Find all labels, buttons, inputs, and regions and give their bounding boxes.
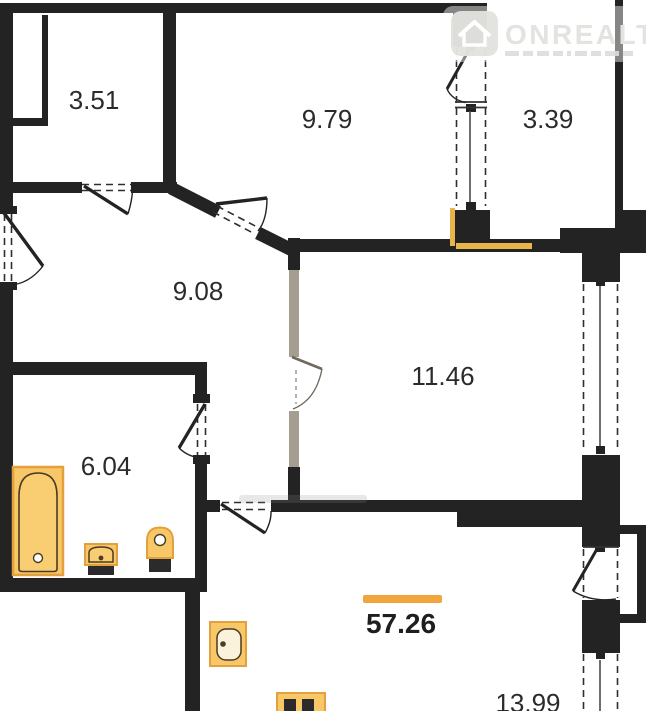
bedroom-door	[216, 198, 267, 231]
logo-subtext-blocks	[505, 51, 633, 56]
area-label-loggia: 3.39	[523, 104, 574, 134]
entrance-door	[4, 213, 43, 285]
wall-storage-bedroom	[163, 13, 176, 185]
brand-name: ONREALT	[505, 19, 646, 50]
entrance-jamb-top	[0, 206, 17, 214]
accent-left	[450, 208, 455, 246]
wall-loggia-bottom	[560, 228, 646, 253]
floor-plan-drawing: 3.51 9.79 3.39 9.08 11.46 6.04 57.26 13.…	[0, 0, 646, 711]
diagonal-door-opening	[213, 212, 255, 234]
bathtub-icon	[13, 467, 63, 575]
room-labels: 3.51 9.79 3.39 9.08 11.46 6.04 57.26 13.…	[69, 85, 574, 711]
wall-bedroom-room	[293, 239, 582, 252]
faint-watermark-smudge	[239, 495, 367, 503]
kitchen-door	[221, 504, 271, 533]
area-label-bathroom: 6.04	[81, 451, 132, 481]
hinge-square	[596, 278, 605, 286]
total-area-value: 57.26	[366, 608, 436, 639]
bathroom-door	[179, 404, 205, 458]
wall-left-lower	[0, 283, 13, 592]
wall-loggia-corner	[615, 210, 646, 230]
stove-icon	[277, 693, 325, 711]
wall-kitchen-left	[185, 592, 200, 711]
wall-kitchen-top-thick	[457, 500, 582, 527]
toilet-icon	[147, 528, 173, 573]
wall-top	[10, 3, 487, 13]
hinge-square	[596, 446, 605, 454]
area-label-storage: 3.51	[69, 85, 120, 115]
balcony-rail-bottom	[620, 614, 646, 623]
partition-gray-lower	[289, 411, 299, 467]
wall-diagonal-left	[171, 188, 218, 212]
area-label-hallway: 9.08	[173, 276, 224, 306]
area-label-bedroom: 9.79	[302, 104, 353, 134]
partition-gray-upper	[289, 270, 299, 357]
room-door	[292, 357, 322, 409]
balcony-rail-right	[637, 525, 646, 623]
wall-left-upper	[0, 3, 13, 213]
opening-dashes	[5, 48, 618, 711]
entrance-jamb-bottom	[0, 282, 17, 290]
area-label-room: 11.46	[411, 361, 474, 391]
wall-kitchen-top-a	[195, 500, 220, 512]
hinge-square	[466, 202, 476, 210]
hinge-square	[596, 651, 605, 659]
bathroom-door-jamb-top	[193, 394, 210, 403]
wall-right-above-window	[582, 253, 620, 282]
watermark-logo: ONREALT	[443, 6, 646, 62]
total-area-underline	[363, 595, 442, 603]
window-glass-lines	[470, 111, 600, 711]
accent-bottom	[456, 243, 532, 249]
balcony-door	[573, 549, 616, 600]
wall-right-mid	[582, 455, 620, 547]
logo-icon-tile	[451, 11, 498, 56]
wall-right-low	[582, 600, 620, 653]
shaft-wall-bottom	[13, 118, 48, 126]
wall-bathroom-bottom	[0, 578, 207, 592]
shaft-wall-right	[42, 15, 48, 122]
floor-plan: 3.51 9.79 3.39 9.08 11.46 6.04 57.26 13.…	[0, 0, 646, 711]
gray-partition	[289, 270, 299, 467]
balcony-block-bottom	[453, 210, 490, 245]
wall-hallway-top-left	[0, 182, 82, 193]
area-label-kitchen: 13.99	[495, 688, 560, 711]
kitchen-sink-icon	[210, 622, 246, 666]
wall-bathroom-top	[0, 362, 207, 375]
bathroom-sink-icon	[85, 544, 117, 575]
wall-bathroom-right-lower	[195, 456, 207, 592]
